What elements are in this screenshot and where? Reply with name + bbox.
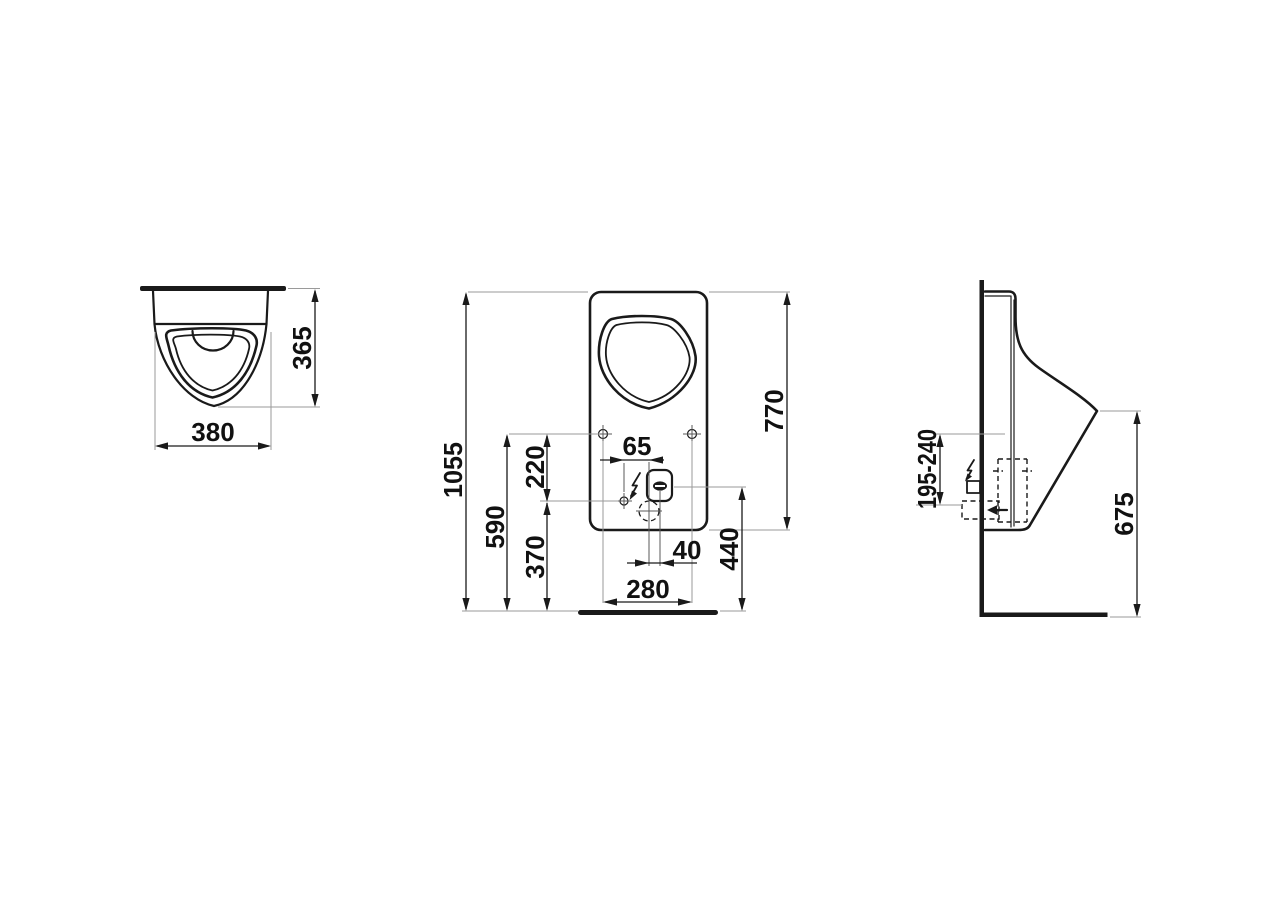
arrowhead-up	[738, 487, 745, 500]
dim-inlet-height-370: 370	[520, 502, 551, 611]
arrowhead-up	[462, 292, 469, 305]
power-connection-box	[967, 481, 980, 493]
arrowhead-left	[987, 505, 997, 515]
electric-flash-icon	[965, 460, 974, 482]
wall-section-line	[980, 280, 985, 617]
arrowhead-down	[462, 598, 469, 611]
dim-overall-height-1055: 1055	[438, 292, 470, 611]
arrowhead-up	[503, 434, 510, 447]
dim-label-width: 380	[191, 417, 234, 447]
dim-label-depth: 365	[287, 326, 317, 369]
dim-fixing-height-590: 590	[480, 434, 511, 611]
dim-label: 195-240	[912, 429, 942, 509]
dim-label: 370	[520, 535, 550, 578]
arrowhead-right	[258, 442, 271, 449]
arrowhead-up	[783, 292, 790, 305]
arrowhead-down	[543, 489, 550, 502]
arrowhead-down	[1133, 604, 1140, 617]
wall-section-bar	[140, 286, 286, 291]
dim-fixing-to-inlet-220: 220	[520, 434, 551, 502]
dim-label: 1055	[438, 442, 468, 498]
dim-label: 590	[480, 505, 510, 548]
technical-drawing-canvas: 365 380	[0, 0, 1280, 900]
arrowhead-right	[635, 559, 649, 566]
dim-fixing-spacing-280: 280	[603, 574, 692, 606]
arrowhead-up	[1133, 411, 1140, 424]
arrowhead-down	[311, 394, 318, 407]
dim-label: 675	[1109, 492, 1139, 535]
dim-inlet-depth-195-240: 195-240	[912, 429, 1005, 509]
top-view: 365 380	[140, 286, 320, 450]
dim-label: 440	[714, 527, 744, 570]
arrowhead-down	[503, 598, 510, 611]
floor-line	[578, 610, 718, 615]
dim-label: 770	[759, 389, 789, 432]
dim-label: 40	[673, 535, 702, 565]
arrowhead-down	[783, 517, 790, 530]
dim-drain-to-spout-40: 40	[627, 535, 701, 567]
arrowhead-right	[678, 598, 692, 605]
floor-section-line	[980, 613, 1108, 618]
arrowhead-down	[543, 598, 550, 611]
dim-body-height-770: 770	[709, 292, 791, 530]
side-view: 195-240 675	[912, 280, 1141, 617]
front-view: 65 40 280 1055	[438, 292, 791, 615]
dim-depth-365: 365	[218, 289, 320, 408]
arrowhead-down	[738, 598, 745, 611]
arrowhead-up	[311, 289, 318, 302]
dim-label: 280	[626, 574, 669, 604]
drain-pipe-dashed	[993, 459, 1032, 522]
dim-label: 65	[623, 431, 652, 461]
dim-label: 220	[520, 445, 550, 488]
arrowhead-up	[543, 502, 550, 515]
urinal-dimension-drawing: 365 380	[0, 0, 1280, 900]
arrowhead-left	[155, 442, 168, 449]
urinal-profile-outline	[985, 292, 1097, 531]
dim-rim-height-675: 675	[1100, 411, 1141, 617]
arrowhead-up	[543, 434, 550, 447]
arrowhead-left	[603, 598, 617, 605]
water-inlet-arrow	[987, 505, 1007, 515]
